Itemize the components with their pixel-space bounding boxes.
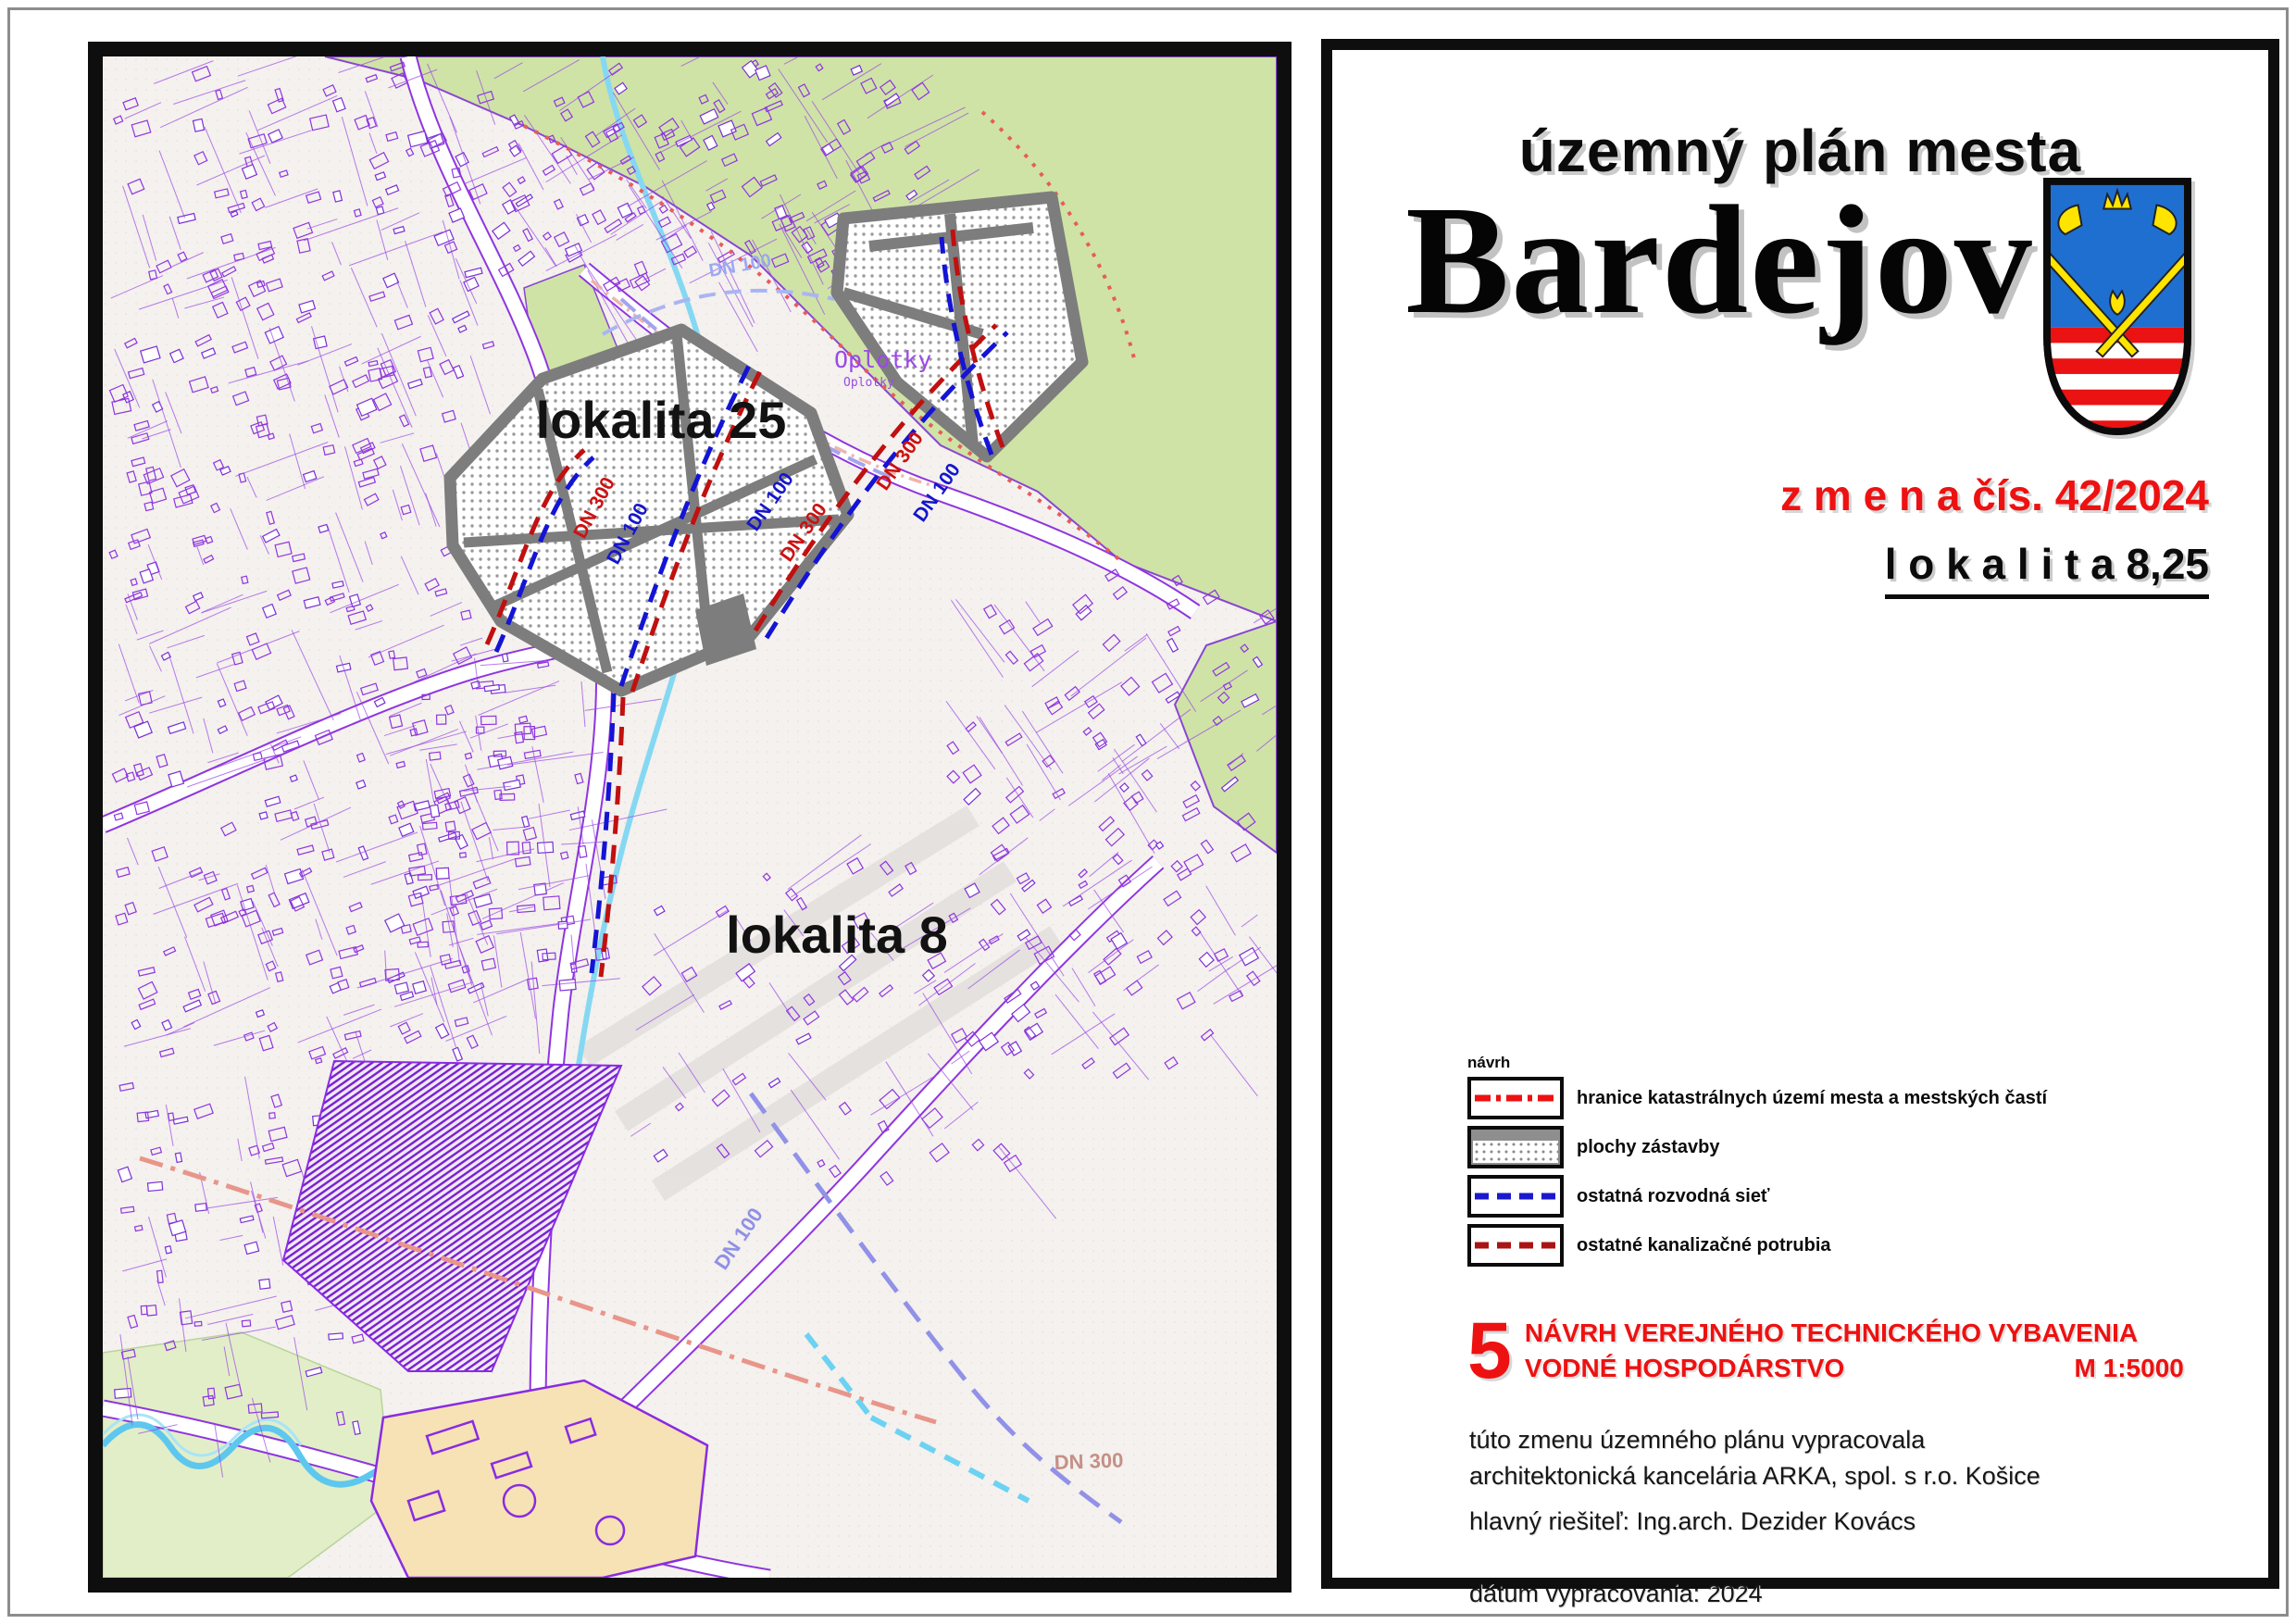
swatch-zastavba-icon [1467,1126,1564,1168]
section-line1: NÁVRH VEREJNÉHO TECHNICKÉHO VYBAVENIA [1525,1318,2184,1348]
city-title-row: Bardejov [1332,187,2268,439]
swatch-blue-dash-icon [1467,1175,1564,1218]
legend-label: ostatné kanalizačné potrubia [1577,1235,1831,1256]
date-of-elaboration: dátum vypracovania: 2024 [1469,1580,1763,1608]
credits-line2: architektonická kancelária ARKA, spol. s… [1469,1458,2040,1494]
legend-heading: návrh [1467,1054,2047,1072]
map-scale: M 1:5000 [2075,1354,2184,1383]
legend-item-rozvodna: ostatná rozvodná sieť [1467,1175,2047,1218]
legend-label: plochy zástavby [1577,1137,1720,1158]
map-label-oplotky-small: Oplotky [843,376,894,390]
bardejov-coat-of-arms-icon [2040,174,2195,439]
map-panel: DN 300DN 100DN 100DN 300DN 300DN 100DN 1… [88,42,1291,1593]
section-number: 5 [1467,1318,1512,1384]
credits-line1: túto zmenu územného plánu vypracovala [1469,1422,2040,1458]
credits: túto zmenu územného plánu vypracovala ar… [1469,1422,2040,1494]
cadastral-map: DN 300DN 100DN 100DN 300DN 300DN 100DN 1… [103,56,1277,1578]
change-number: z m e n a čís. 42/2024 [1332,470,2209,520]
section-title: 5 NÁVRH VEREJNÉHO TECHNICKÉHO VYBAVENIA … [1467,1318,2184,1384]
lokalita-heading: l o k a l i t a 8,25 [1885,539,2209,599]
legend-label: hranice katastrálnych území mesta a mest… [1577,1088,2047,1109]
map-label-oplotky: Oplotky [834,346,931,373]
chief-designer: hlavný riešiteľ: Ing.arch. Dezider Kovác… [1469,1507,1915,1536]
map-label-lokalita-25: lokalita 25 [536,391,787,449]
legend-item-boundary: hranice katastrálnych území mesta a mest… [1467,1077,2047,1119]
section-line2: VODNÉ HOSPODÁRSTVO [1525,1354,1844,1383]
swatch-darkred-dash-icon [1467,1224,1564,1267]
map-label-lokalita-8: lokalita 8 [726,906,948,964]
swatch-red-dashdot-icon [1467,1077,1564,1119]
legend: návrh hranice katastrálnych území mesta … [1467,1054,2047,1273]
legend-label: ostatná rozvodná sieť [1577,1186,1770,1207]
city-name: Bardejov [1405,187,2034,335]
plan-sheet: DN 300DN 100DN 100DN 300DN 300DN 100DN 1… [0,0,2296,1624]
legend-item-kanalizacia: ostatné kanalizačné potrubia [1467,1224,2047,1267]
crest-stripes [2047,328,2188,436]
dn-label: DN 300 [1054,1448,1123,1474]
lokalita-heading-wrap: l o k a l i t a 8,25 [1332,539,2209,599]
title-panel: územný plán mesta Bardejov [1321,39,2279,1589]
legend-item-zastavba: plochy zástavby [1467,1126,2047,1168]
